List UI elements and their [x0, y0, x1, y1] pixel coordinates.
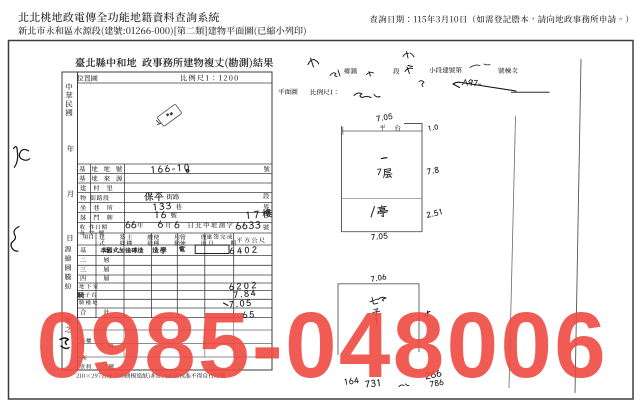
svg-text:0985-048006: 0985-048006: [37, 293, 609, 397]
